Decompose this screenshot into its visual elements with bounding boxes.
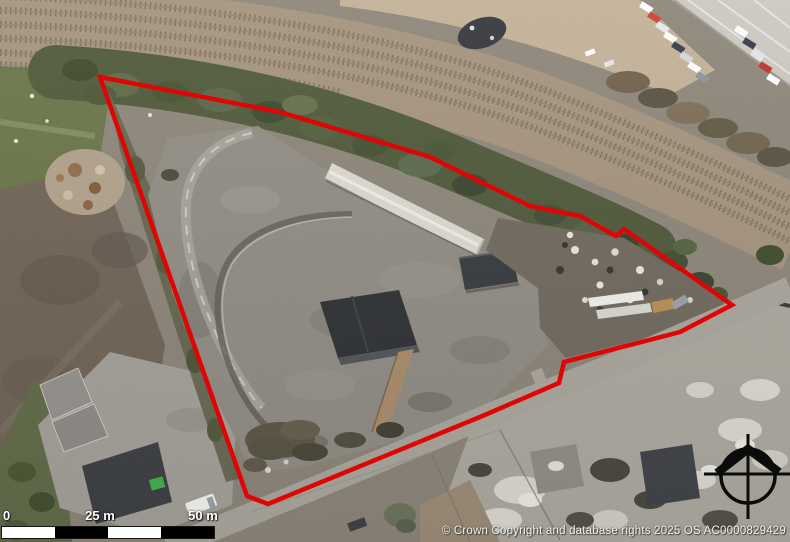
aerial-map: 0 25 m 50 m © Crown Copyright and databa… [0, 0, 790, 542]
scale-segment [55, 527, 108, 538]
scale-label-25m: 25 m [76, 509, 124, 523]
aerial-photo-canvas [0, 0, 790, 542]
copyright-attribution: © Crown Copyright and database rights 20… [442, 525, 786, 537]
scale-label-50m: 50 m [178, 509, 228, 523]
scale-segment [161, 527, 214, 538]
scale-bar [2, 527, 215, 539]
scale-label-0: 0 [3, 509, 10, 523]
scale-segment [108, 527, 161, 538]
scale-segment [2, 527, 55, 538]
